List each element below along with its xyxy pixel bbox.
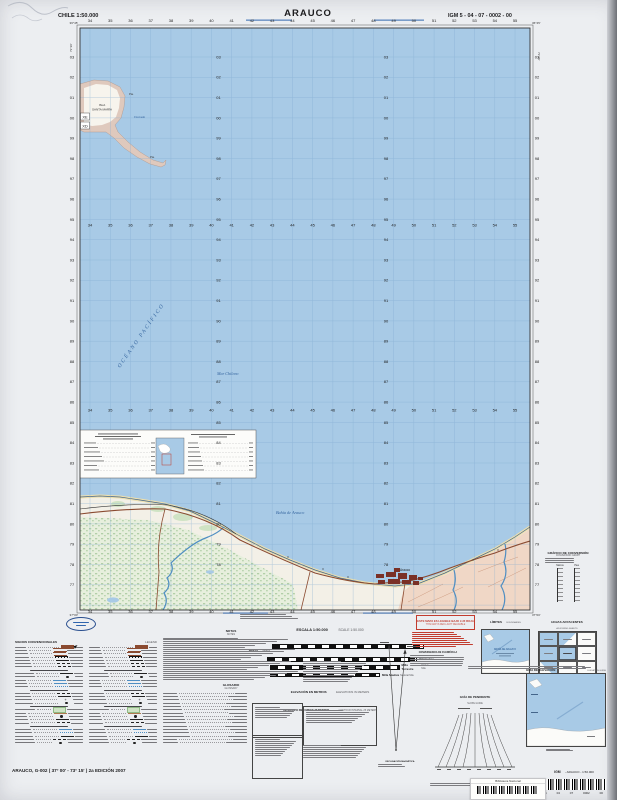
easting-label: 40 <box>209 408 214 413</box>
easting-label: 52 <box>452 609 457 614</box>
easting-label: 50 <box>412 18 417 23</box>
declination-diagram: DECLINACIÓN MAGNÉTICA <box>378 640 422 768</box>
legend-symbol-dash <box>57 664 72 669</box>
northing-label: 82 <box>216 481 221 486</box>
microtext-line <box>546 750 573 751</box>
easting-label: 41 <box>229 18 234 23</box>
easting-label: 46 <box>331 609 336 614</box>
reference-box <box>303 706 377 746</box>
microtext-line <box>545 560 574 561</box>
northing-label: 85 <box>535 420 540 425</box>
microtext-line <box>163 677 265 678</box>
easting-label: 38 <box>169 609 174 614</box>
easting-label: 51 <box>432 609 437 614</box>
adjoining-cell <box>539 646 558 660</box>
microtext-line <box>303 747 366 748</box>
easting-label: 34 <box>88 223 93 228</box>
legend-symbol-dot <box>133 701 148 706</box>
slope-guide: GUÍA DE PENDIENTE SLOPE GUIDE <box>430 685 520 787</box>
northing-label: 81 <box>384 501 389 506</box>
northing-label: 91 <box>535 298 540 303</box>
conversion-graph: GRÁFICO DE CONVERSIÓN CONVERSION GRAPH M… <box>530 551 606 602</box>
microtext-line <box>163 661 291 662</box>
microtext-line <box>255 747 290 748</box>
microtext-line <box>255 715 290 716</box>
easting-label: 46 <box>331 18 336 23</box>
legend-symbol-dash <box>56 720 71 725</box>
svg-text:36°45': 36°45' <box>532 21 541 25</box>
elevguide-title-en: ELEVATION GUIDE <box>587 670 606 672</box>
point-label-ne: Pta. <box>129 92 134 96</box>
red-notice-es: ESTE MAPA ES LEGIBLE BAJO LUZ ROJA <box>417 619 474 623</box>
northing-label: 78 <box>384 562 389 567</box>
easting-label: 42 <box>250 223 255 228</box>
northing-label: 01 <box>216 95 221 100</box>
easting-label: 53 <box>472 609 477 614</box>
adjoining-cell <box>577 632 596 646</box>
legend-symbol-bluewave <box>54 684 69 689</box>
easting-label: 54 <box>493 18 498 23</box>
easting-label: 35 <box>108 223 113 228</box>
microtext-line <box>163 643 266 644</box>
northing-label: 82 <box>70 481 75 486</box>
easting-label: 47 <box>351 408 356 413</box>
microtext-line <box>255 707 280 708</box>
limits-title-es: LÍMITES <box>490 620 502 624</box>
igm-barcode <box>542 779 606 790</box>
easting-label: 54 <box>493 408 498 413</box>
northing-label: 86 <box>535 400 540 405</box>
easting-label: 50 <box>412 223 417 228</box>
easting-label: 45 <box>310 223 315 228</box>
microtext-line <box>303 749 364 750</box>
microtext-line <box>163 671 298 672</box>
adjoining-cell-current <box>558 646 577 660</box>
conversion-title-en: CONVERSION GRAPH <box>530 555 606 557</box>
northing-label: 80 <box>535 521 540 526</box>
northing-label: 82 <box>384 481 389 486</box>
northing-label: 97 <box>70 176 75 181</box>
easting-label: 51 <box>432 18 437 23</box>
elevguide-map <box>526 673 606 747</box>
easting-label: 46 <box>331 223 336 228</box>
northing-label: 00 <box>535 115 540 120</box>
conversion-unit-pies: Pies <box>574 564 580 567</box>
bay-label: Bahía de Arauco <box>276 510 304 515</box>
northing-label: 84 <box>216 440 221 445</box>
scale-title-es: ESCALA 1:50.000 <box>296 628 328 632</box>
northing-label: 98 <box>535 156 540 161</box>
northing-label: 81 <box>70 501 75 506</box>
microtext-line <box>412 634 457 635</box>
northing-label: 79 <box>535 542 540 547</box>
slope-title-es: GUÍA DE PENDIENTE <box>460 695 490 699</box>
easting-label: 39 <box>189 18 194 23</box>
northing-label: 92 <box>70 278 75 283</box>
easting-label: 35 <box>108 609 113 614</box>
northing-label: 88 <box>535 359 540 364</box>
northing-label: 94 <box>70 237 75 242</box>
easting-label: 41 <box>229 408 234 413</box>
easting-label: 48 <box>371 223 376 228</box>
northing-label: 94 <box>535 237 540 242</box>
northing-label: 92 <box>384 278 389 283</box>
microtext-line <box>255 713 292 714</box>
northing-label: 87 <box>384 379 389 384</box>
adjoining-cell <box>558 632 577 646</box>
easting-label: 36 <box>128 223 133 228</box>
northing-label: 00 <box>216 115 221 120</box>
northing-label: 91 <box>384 298 389 303</box>
microtext-line <box>306 714 365 715</box>
microtext-line <box>378 764 402 765</box>
microtext-line <box>255 749 287 750</box>
sticker-barcode <box>477 786 539 794</box>
microtext-line <box>303 671 358 672</box>
microtext-line <box>306 722 352 723</box>
microtext-line <box>255 741 296 742</box>
svg-text:36°45': 36°45' <box>70 21 79 25</box>
slope-curves <box>430 705 520 777</box>
northing-label: 79 <box>216 542 221 547</box>
legend-symbol-dash <box>130 720 145 725</box>
cursor-artifact <box>74 644 79 649</box>
northing-label: 78 <box>70 562 75 567</box>
northing-label: 02 <box>535 75 540 80</box>
northing-label: 89 <box>216 339 221 344</box>
microtext-line <box>255 753 283 754</box>
microtext-line <box>303 675 354 676</box>
northing-label: 98 <box>216 156 221 161</box>
northing-label: 96 <box>216 197 221 202</box>
easting-label: 43 <box>270 18 275 23</box>
northing-label: 87 <box>70 379 75 384</box>
igm-barcode-block: IGM - ARAUCO - 1:50.000 50407000200 <box>538 760 610 795</box>
northing-label: 90 <box>216 318 221 323</box>
easting-label: 55 <box>513 18 518 23</box>
inset-minimap <box>156 438 184 474</box>
easting-label: 38 <box>169 223 174 228</box>
northing-label: 77 <box>70 582 75 587</box>
northing-label: 80 <box>70 521 75 526</box>
microtext-line <box>303 745 341 746</box>
easting-label: 55 <box>513 408 518 413</box>
northing-label: 82 <box>535 481 540 486</box>
northing-label: 99 <box>384 136 389 141</box>
pond <box>206 570 214 574</box>
northing-label: 98 <box>70 156 75 161</box>
microtext-line <box>303 667 362 668</box>
easting-label: 34 <box>88 408 93 413</box>
easting-label: 43 <box>270 223 275 228</box>
northing-label: 92 <box>535 278 540 283</box>
northing-label: 88 <box>216 359 221 364</box>
northing-label: 03 <box>384 54 389 59</box>
northing-label: 03 <box>70 54 75 59</box>
legend-row <box>89 741 157 744</box>
igm-map-ref: - ARAUCO - 1:50.000 <box>565 770 594 774</box>
easting-label: 51 <box>432 408 437 413</box>
easting-label: 47 <box>351 223 356 228</box>
microtext-line <box>412 638 464 639</box>
northing-label: 01 <box>535 95 540 100</box>
glossary-title-en: GLOSSARY <box>163 687 299 690</box>
northing-label: 91 <box>216 298 221 303</box>
northing-label: 01 <box>384 95 389 100</box>
easting-label: 49 <box>391 18 396 23</box>
microtext-line <box>303 663 366 664</box>
easting-label: 44 <box>290 18 295 23</box>
easting-label: 51 <box>432 223 437 228</box>
microtext-line <box>163 653 273 654</box>
northing-label: 95 <box>535 217 540 222</box>
town-label: Arauco <box>400 568 410 572</box>
easting-label: 35 <box>108 408 113 413</box>
microtext-line <box>412 632 454 633</box>
northing-label: 96 <box>535 197 540 202</box>
northing-label: 81 <box>216 501 221 506</box>
easting-label: 36 <box>128 18 133 23</box>
easting-label: 40 <box>209 223 214 228</box>
northing-label: 90 <box>384 318 389 323</box>
easting-label: 48 <box>371 18 376 23</box>
declination-caption: DECLINACIÓN MAGNÉTICA <box>378 761 422 763</box>
igm-label: IGM <box>554 770 560 774</box>
legend-symbol-dot <box>127 740 142 745</box>
legend-symbol-dash <box>131 664 146 669</box>
northing-label: 93 <box>216 257 221 262</box>
microtext-line <box>303 753 360 754</box>
northing-label: 02 <box>70 75 75 80</box>
northing-label: 93 <box>384 257 389 262</box>
northing-label: 83 <box>216 460 221 465</box>
northing-label: 80 <box>216 521 221 526</box>
easting-label: 35 <box>108 18 113 23</box>
point-label-spit: Pta. <box>150 155 155 159</box>
adjoining-title-en: ADJOINING SHEETS <box>534 628 600 630</box>
northing-label: 95 <box>70 217 75 222</box>
northing-label: 95 <box>216 217 221 222</box>
island-label-2: SANTA MARÍA <box>92 107 112 111</box>
elevguide-title-es: GUÍA DE ELEVACIÓN <box>526 668 555 672</box>
easting-label: 52 <box>452 408 457 413</box>
microtext-line <box>255 755 281 756</box>
legend-symbol-dot <box>53 740 68 745</box>
northing-label: 84 <box>535 440 540 445</box>
easting-label: 42 <box>250 408 255 413</box>
northing-label: 87 <box>535 379 540 384</box>
reference-column-2 <box>303 744 369 759</box>
lagoon <box>107 597 119 602</box>
scan-edge <box>607 0 617 800</box>
easting-label: 49 <box>391 609 396 614</box>
microtext-line <box>303 751 362 752</box>
northing-label: 95 <box>384 217 389 222</box>
adjoining-cell <box>577 646 596 660</box>
easting-label: 34 <box>88 609 93 614</box>
scale-title-en: SCALE 1:50.000 <box>338 628 363 632</box>
northing-label: 03 <box>216 54 221 59</box>
easting-label: 38 <box>169 18 174 23</box>
microtext-line <box>306 720 355 721</box>
northing-label: 97 <box>535 176 540 181</box>
northing-label: 99 <box>535 136 540 141</box>
svg-text:XD: XD <box>82 123 88 128</box>
microtext-line <box>163 679 254 680</box>
limits-title-en: BOUNDARIES <box>506 622 520 624</box>
microtext-line <box>255 743 294 744</box>
microtext-line <box>163 667 258 668</box>
northing-label: 83 <box>384 460 389 465</box>
easting-label: 53 <box>472 18 477 23</box>
microtext-line <box>303 681 348 682</box>
easting-label: 39 <box>189 609 194 614</box>
sheet-edition-note: ARAUCO, G-002 ( 37° 00' - 73° 15' ) 2a E… <box>12 768 126 773</box>
easting-label: 40 <box>209 18 214 23</box>
red-light-notice: ESTE MAPA ES LEGIBLE BAJO LUZ ROJA THIS … <box>416 615 475 630</box>
easting-label: 36 <box>128 609 133 614</box>
northing-label: 02 <box>216 75 221 80</box>
northing-label: 80 <box>384 521 389 526</box>
northing-label: 85 <box>384 420 389 425</box>
northing-label: 99 <box>216 136 221 141</box>
easting-label: 42 <box>250 18 255 23</box>
easting-label: 41 <box>229 223 234 228</box>
northing-label: 93 <box>70 257 75 262</box>
microtext-line <box>255 717 287 718</box>
northing-label: 93 <box>535 257 540 262</box>
northing-label: 87 <box>216 379 221 384</box>
sea-label: Mar Chileno <box>216 371 239 376</box>
northing-label: 84 <box>384 440 389 445</box>
easting-label: 50 <box>412 408 417 413</box>
northing-label: 89 <box>70 339 75 344</box>
microtext-line <box>240 616 292 617</box>
northing-label: 02 <box>384 75 389 80</box>
ocean-inset-box <box>80 430 256 478</box>
microtext-line <box>303 757 356 758</box>
northing-label: 90 <box>70 318 75 323</box>
northing-label: 83 <box>535 460 540 465</box>
easting-label: 47 <box>351 18 356 23</box>
svg-text:73°30': 73°30' <box>69 43 73 52</box>
northing-label: 97 <box>384 176 389 181</box>
red-notice-en: THIS MAP IS RED-LIGHT READABLE <box>426 624 465 626</box>
easting-label: 52 <box>452 18 457 23</box>
barcode-digit: 04 <box>557 791 560 795</box>
reference-column <box>303 660 369 683</box>
microtext-line <box>163 659 241 660</box>
easting-label: 40 <box>209 609 214 614</box>
microtext-line <box>255 711 294 712</box>
microtext-line <box>163 638 238 639</box>
adjoining-title-es: HOJAS ADYACENTES <box>551 620 582 624</box>
easting-label: 52 <box>452 223 457 228</box>
northing-label: 86 <box>384 400 389 405</box>
easting-label: 45 <box>310 18 315 23</box>
barcode-digit: 07 <box>570 791 573 795</box>
northing-label: 84 <box>70 440 75 445</box>
microtext-line <box>255 745 292 746</box>
legend-panel: SIGNOS CONVENCIONALES LEGEND + + <box>15 640 157 744</box>
microtext-line <box>303 665 364 666</box>
easting-label: 49 <box>391 223 396 228</box>
microtext-line <box>240 614 286 615</box>
easting-label: 53 <box>472 408 477 413</box>
conversion-unit-metros: Metros <box>556 564 563 567</box>
easting-label: 37 <box>148 609 153 614</box>
legend-title-en: LEGEND <box>145 640 157 644</box>
microtext-line <box>163 669 247 670</box>
microtext-line <box>255 751 285 752</box>
northing-label: 85 <box>70 420 75 425</box>
microtext-line <box>255 709 296 710</box>
northing-label: 79 <box>70 542 75 547</box>
easting-label: 45 <box>310 609 315 614</box>
scanned-map-sheet: CHILE 1:50.000 ARAUCO IGM 5 - 04 - 07 - … <box>0 0 617 800</box>
northing-label: 00 <box>70 115 75 120</box>
easting-label: 37 <box>148 223 153 228</box>
adjoining-cell <box>539 632 558 646</box>
easting-label: 37 <box>148 408 153 413</box>
northing-label: 81 <box>535 501 540 506</box>
legend-row <box>15 741 83 744</box>
microtext-line <box>378 766 405 767</box>
easting-label: 41 <box>229 609 234 614</box>
conversion-rule-metros <box>557 568 563 602</box>
easting-label: 44 <box>290 408 295 413</box>
easting-label: 39 <box>189 223 194 228</box>
microtext-line <box>163 647 245 648</box>
microtext-line <box>163 641 277 642</box>
northing-label: 92 <box>216 278 221 283</box>
northing-label: 89 <box>384 339 389 344</box>
microtext-line <box>163 657 251 658</box>
northing-label: 94 <box>384 237 389 242</box>
microtext-line <box>545 558 574 559</box>
microtext-line <box>306 710 343 711</box>
microtext-line <box>412 636 461 637</box>
easting-label: 36 <box>128 408 133 413</box>
northing-label: 00 <box>384 115 389 120</box>
microtext-line <box>303 677 352 678</box>
northing-label: 99 <box>70 136 75 141</box>
northing-label: 88 <box>384 359 389 364</box>
barcode-digit: 0002 <box>583 791 590 795</box>
ensenada-label: Ensenada <box>133 116 146 119</box>
easting-label: 43 <box>270 408 275 413</box>
elevation-guide: GUÍA DE ELEVACIÓN ELEVATION GUIDE <box>526 668 606 752</box>
easting-label: 53 <box>472 223 477 228</box>
microtext-line <box>306 718 358 719</box>
northing-label: 88 <box>70 359 75 364</box>
island-label-1: ISLA <box>99 103 106 107</box>
microtext-line <box>303 673 356 674</box>
elevation-note-en: ELEVATIONS IN METERS <box>336 690 369 694</box>
easting-label: 46 <box>331 408 336 413</box>
svg-text:73°15': 73°15' <box>537 52 541 61</box>
microtext-line <box>468 666 585 667</box>
microtext-line <box>303 679 350 680</box>
microtext-line <box>163 645 255 646</box>
microtext-line <box>163 649 295 650</box>
igm-logo <box>66 617 96 631</box>
conversion-rule-pies <box>574 568 580 602</box>
microtext-line <box>163 675 276 676</box>
northing-label: 79 <box>384 542 389 547</box>
microtext-line <box>546 749 570 750</box>
microtext-line <box>163 663 280 664</box>
